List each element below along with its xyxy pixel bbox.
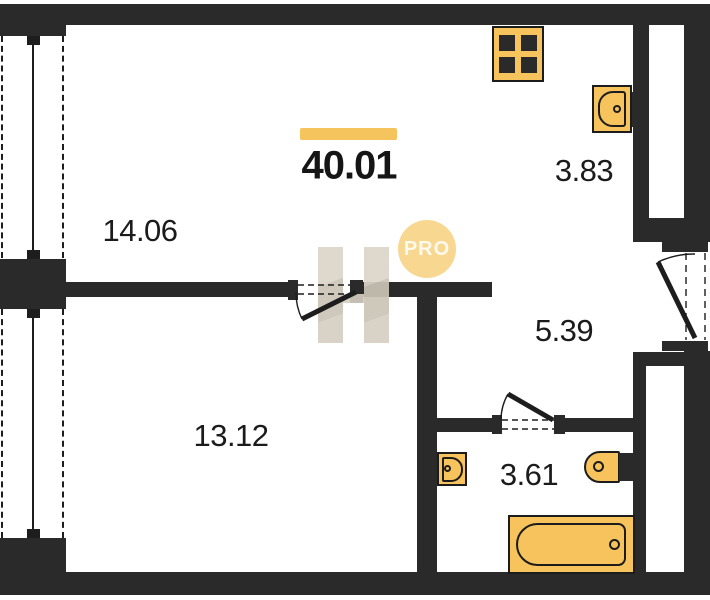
total-area-label: 40.01	[301, 144, 396, 189]
wall-bathroom-top-right	[565, 418, 633, 432]
window-icon	[1, 309, 3, 538]
wall-vestibule-shaft	[633, 352, 684, 366]
kitchen-sink-icon	[592, 85, 632, 133]
kitchen-sink-drain	[613, 105, 621, 113]
toilet-icon	[584, 451, 620, 483]
entry-door-lintel	[662, 242, 708, 252]
window-post	[27, 309, 40, 318]
wall-left-pier-top	[0, 4, 66, 36]
door-leaf-bathroom	[508, 394, 553, 420]
floor-plan: 40.01 14.06 3.83 5.39 13.12 3.61 PRO	[0, 0, 710, 600]
window-icon	[62, 309, 64, 538]
wall-top	[0, 4, 710, 25]
total-area-accent-bar	[300, 128, 397, 140]
door-opening-entry	[686, 253, 705, 340]
kitchen-sink-mount	[630, 92, 649, 127]
stove-burner	[499, 35, 515, 51]
washbasin-icon	[437, 452, 467, 486]
entry-door-sill	[662, 341, 708, 351]
door-leaf-entry	[658, 262, 695, 338]
watermark-pro-label: PRO	[404, 238, 450, 261]
watermark-pro-badge: PRO	[398, 220, 456, 278]
stove-burner	[521, 57, 537, 73]
toilet-drain	[593, 461, 604, 472]
door-jamb-bathroom-right	[554, 415, 565, 434]
wall-bedroom-hallway	[417, 293, 437, 573]
bathtub-drain	[609, 539, 620, 550]
door-arc-entry	[658, 254, 695, 262]
room-label-hallway: 5.39	[535, 313, 593, 349]
toilet-tank	[619, 453, 634, 481]
room-label-bedroom: 13.12	[193, 418, 268, 454]
stove-burner	[521, 35, 537, 51]
door-jamb-bedroom-left	[288, 280, 298, 300]
window-glass-line	[32, 36, 34, 258]
window-icon	[1, 36, 3, 258]
window-post	[27, 250, 40, 259]
window-icon	[62, 36, 64, 258]
stove-burner	[499, 57, 515, 73]
watermark-logo-bar-right	[364, 247, 389, 343]
window-post	[27, 36, 40, 45]
stove-icon	[492, 26, 544, 82]
kitchen-sink-bowl	[598, 91, 626, 127]
watermark-logo-crossbar	[343, 294, 364, 303]
room-label-kitchen: 3.83	[555, 153, 613, 189]
wall-bottom	[0, 572, 710, 595]
wall-shaft-bottom-block	[633, 218, 710, 242]
wall-left-pier-middle	[0, 259, 66, 309]
wall-right-lower	[684, 351, 710, 573]
room-label-living: 14.06	[102, 213, 177, 249]
window-glass-line	[32, 309, 34, 538]
door-jamb-bathroom-left	[492, 415, 502, 434]
door-arc-bathroom	[501, 394, 508, 420]
door-opening-bathroom	[502, 420, 554, 429]
watermark-logo-bar-left	[318, 247, 343, 343]
wall-bathroom-top-left	[437, 418, 492, 432]
room-label-bathroom: 3.61	[500, 457, 558, 493]
wall-living-bedroom-left	[66, 282, 288, 297]
wall-right-upper	[684, 25, 710, 242]
stove-burners	[494, 28, 542, 80]
wall-left-pier-bottom	[0, 538, 66, 595]
bathtub-icon	[508, 515, 635, 574]
window-post	[27, 529, 40, 538]
washbasin-drain	[444, 465, 451, 472]
